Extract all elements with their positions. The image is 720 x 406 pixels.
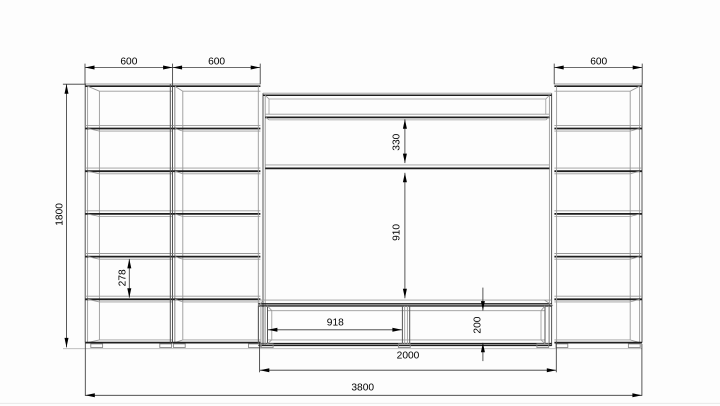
svg-text:330: 330 bbox=[392, 133, 403, 150]
svg-text:3800: 3800 bbox=[351, 383, 374, 394]
svg-text:600: 600 bbox=[590, 57, 607, 68]
svg-text:1800: 1800 bbox=[55, 203, 66, 226]
svg-text:918: 918 bbox=[327, 318, 344, 329]
svg-text:600: 600 bbox=[120, 57, 137, 68]
svg-text:910: 910 bbox=[392, 224, 403, 241]
svg-text:600: 600 bbox=[208, 57, 225, 68]
svg-text:200: 200 bbox=[472, 316, 483, 333]
svg-text:2000: 2000 bbox=[397, 351, 420, 362]
svg-text:278: 278 bbox=[118, 269, 129, 286]
